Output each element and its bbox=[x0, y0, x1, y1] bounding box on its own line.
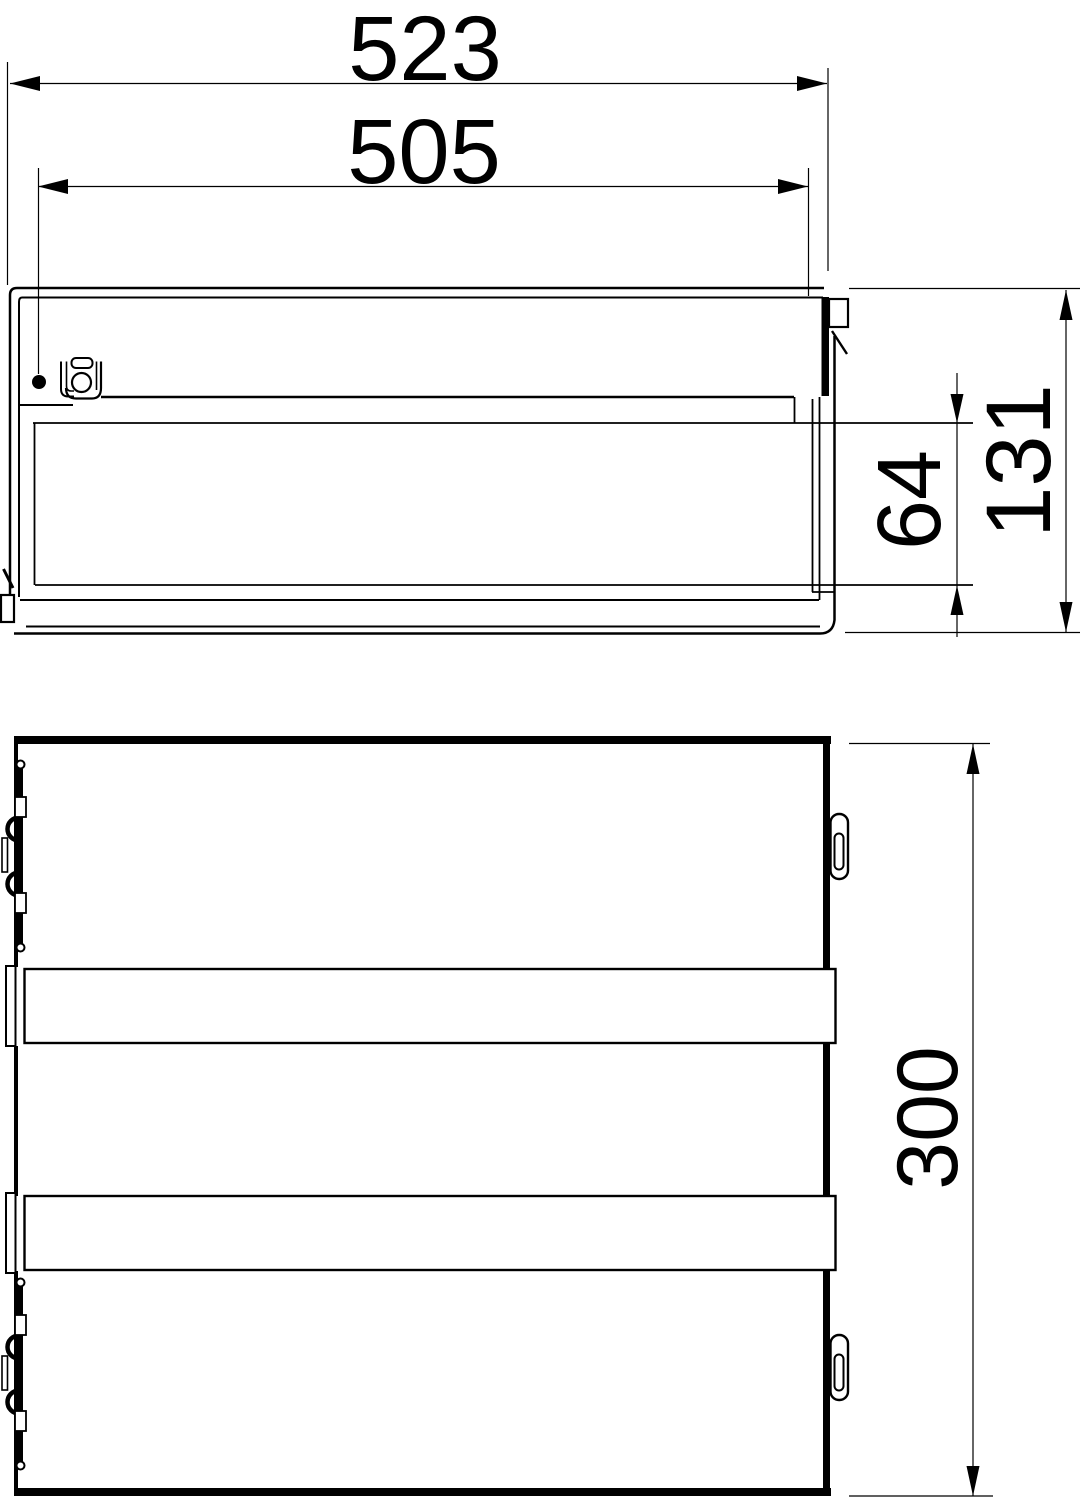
technical-drawing-canvas: 523 505 64 131 bbox=[0, 0, 1083, 1500]
cross-rail-lower bbox=[25, 1196, 836, 1270]
reference-dot bbox=[32, 375, 46, 389]
latch-hole bbox=[72, 373, 91, 392]
dim-cover-width: 505 bbox=[38, 101, 809, 374]
dim-cover-width-label: 505 bbox=[347, 101, 501, 203]
dim-523-arrow-right bbox=[797, 76, 827, 91]
cross-rail-lower-endcap bbox=[6, 1193, 16, 1273]
dim-overall-depth: 300 bbox=[849, 744, 993, 1497]
clip-pin-bottom bbox=[17, 944, 25, 952]
side-view-inner-top-line bbox=[19, 298, 823, 598]
side-view bbox=[1, 288, 973, 634]
dim-300-arrow-bottom bbox=[967, 1466, 980, 1496]
clip-slot-upper bbox=[15, 797, 26, 817]
plan-view bbox=[2, 740, 848, 1492]
clip-right-slot bbox=[835, 834, 844, 870]
clip-pin-top bbox=[17, 761, 25, 769]
bottom-left-lip bbox=[1, 595, 14, 622]
dim-inner-depth-label: 64 bbox=[860, 450, 960, 550]
cross-rail-upper-endcap bbox=[6, 966, 16, 1046]
technical-drawing-page: 523 505 64 131 bbox=[0, 0, 1083, 1500]
mounting-clip-right-bottom bbox=[831, 1335, 849, 1400]
side-latch-tab bbox=[829, 299, 848, 327]
latch-slot bbox=[72, 358, 93, 368]
latch-detail bbox=[32, 358, 101, 399]
clip-mid-plate bbox=[2, 838, 8, 872]
bottom-left-tick bbox=[4, 569, 14, 588]
dim-131-arrow-bottom bbox=[1060, 602, 1073, 632]
dim-300-arrow-top bbox=[967, 744, 980, 774]
dim-64-arrow-bottom bbox=[951, 586, 964, 616]
dim-inner-depth: 64 bbox=[860, 373, 964, 637]
cover-right-edge-bar bbox=[822, 297, 830, 396]
clip-slot-lower bbox=[15, 893, 26, 913]
dim-overall-depth-label: 300 bbox=[880, 1046, 976, 1190]
dim-131-arrow-top bbox=[1060, 290, 1073, 320]
dim-505-arrow-left bbox=[38, 179, 68, 194]
dim-64-arrow-top bbox=[951, 394, 964, 423]
dim-505-arrow-right bbox=[778, 179, 808, 194]
cross-rail-upper bbox=[25, 969, 836, 1043]
dim-overall-width-label: 523 bbox=[348, 0, 502, 100]
side-view-outer-contour bbox=[10, 288, 824, 598]
dim-overall-height-label: 131 bbox=[968, 384, 1070, 538]
mounting-clip-right-top bbox=[831, 814, 849, 879]
side-view-bottom-right-contour bbox=[14, 336, 835, 634]
dim-523-arrow-left bbox=[10, 76, 40, 91]
